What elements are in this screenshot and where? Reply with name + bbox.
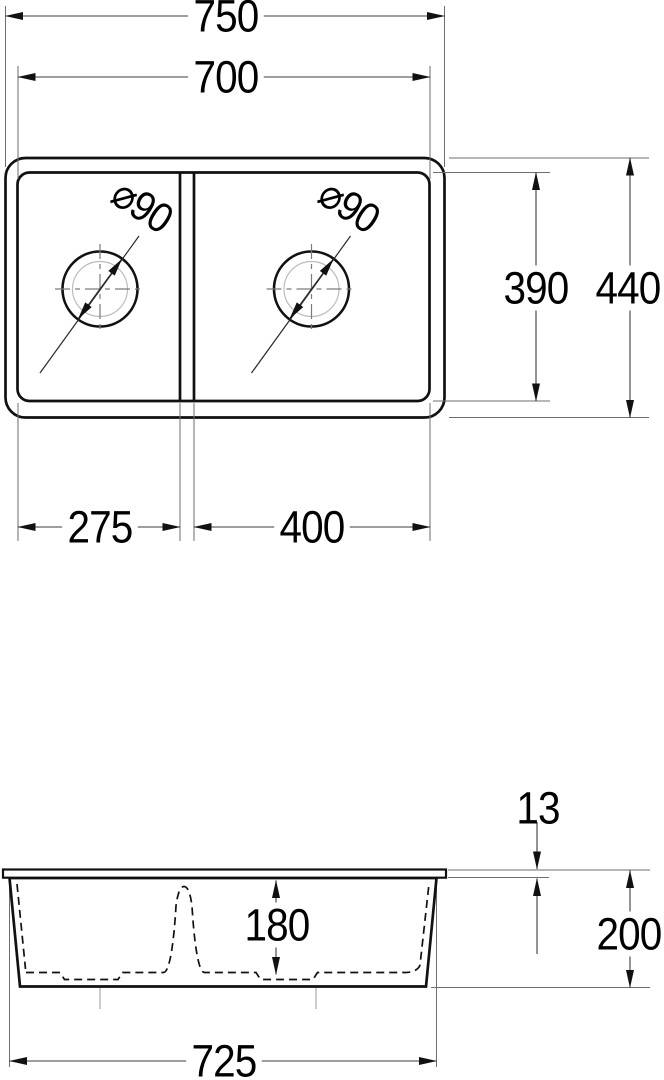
dim-inner-depth-label: 390: [498, 266, 574, 311]
dim-rim-height-label: 13: [511, 786, 565, 831]
dim-overall-depth-label: 440: [594, 266, 662, 311]
side-view: [3, 822, 650, 1067]
dim-base-width-label: 725: [186, 1039, 262, 1080]
dim-left-bowl-width-label: 275: [62, 505, 138, 550]
dim-overall-height-label: 200: [595, 912, 663, 957]
drain-center-ticks: [100, 988, 316, 1010]
dim-right-bowl-width-label: 400: [274, 505, 350, 550]
dim-overall-width-label: 750: [188, 0, 264, 39]
sink-technical-drawing: 750 700 390 440 275 400 ⌀90 ⌀90 13 180 2…: [0, 0, 664, 1080]
dim-bowl-depth-label: 180: [239, 903, 315, 948]
dim-inner-width-label: 700: [188, 55, 264, 100]
sink-rim-section: [3, 870, 446, 878]
sink-body-section: [10, 878, 437, 987]
